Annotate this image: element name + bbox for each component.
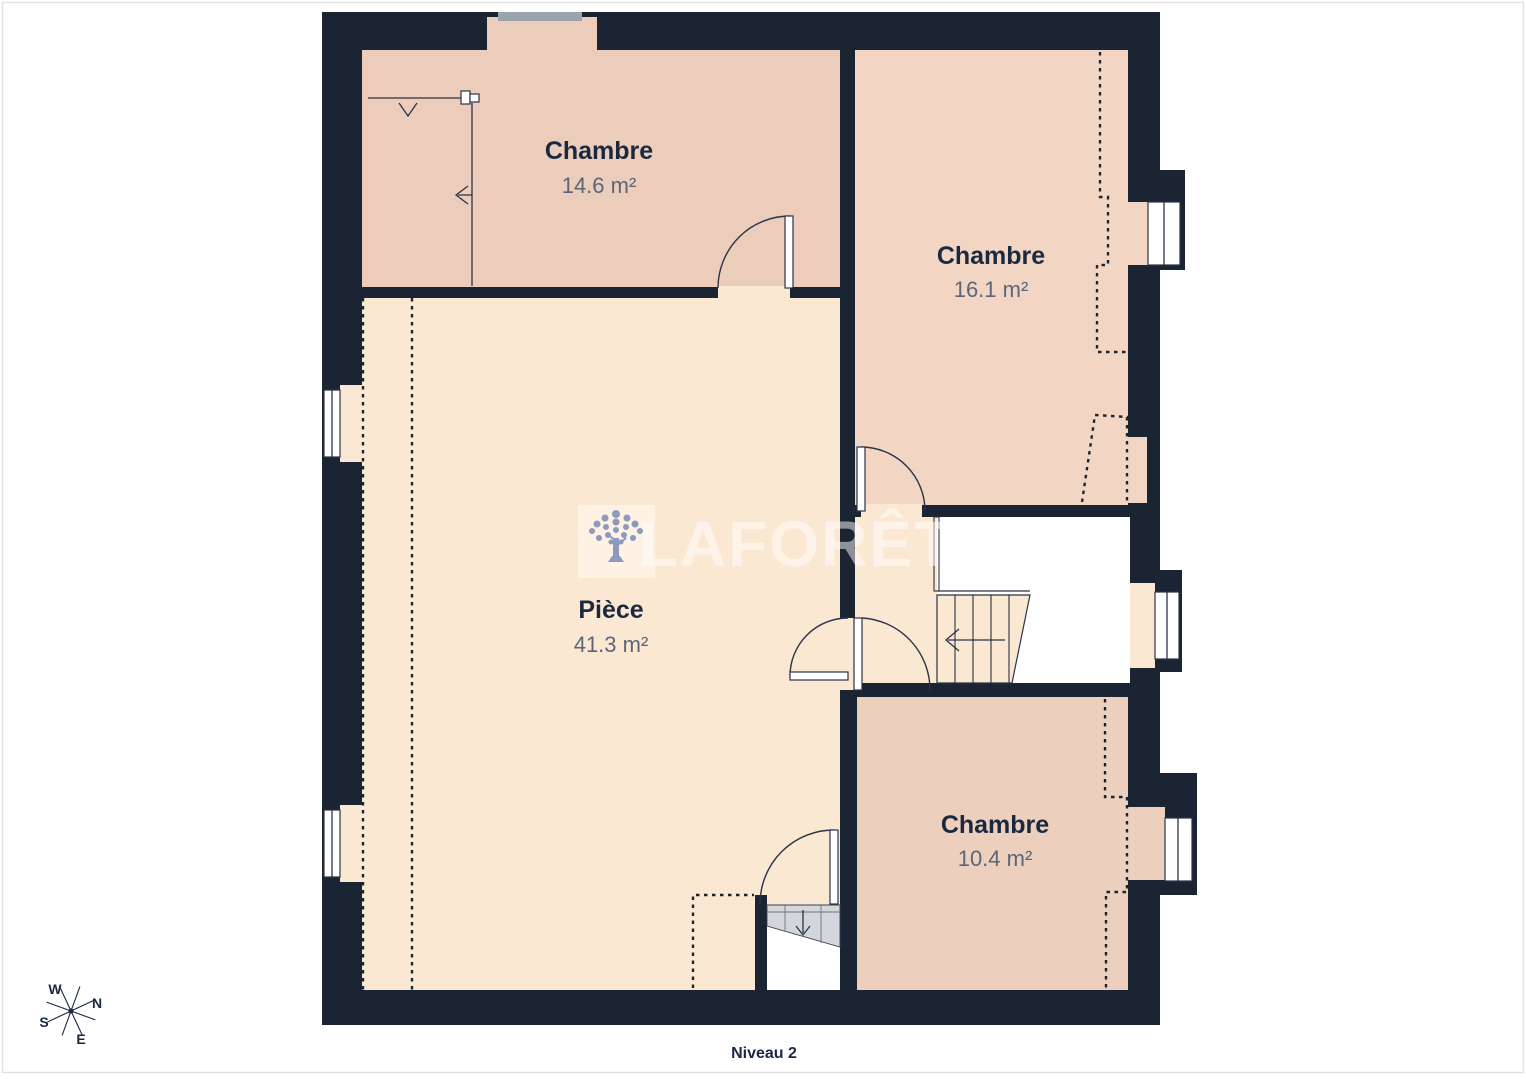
window-left-1 xyxy=(324,385,362,462)
compass-east: E xyxy=(76,1031,85,1047)
compass-north: N xyxy=(92,995,102,1011)
compass-rose: W N S E xyxy=(39,981,102,1047)
brand-watermark-text: LAFORÊT xyxy=(639,507,955,580)
wall-stub-lower-stair xyxy=(755,895,767,990)
window-right-3 xyxy=(1128,807,1192,881)
compass-center-dot xyxy=(68,1008,73,1013)
room-area-piece: 41.3 m² xyxy=(574,632,649,657)
window-right-1 xyxy=(1128,202,1180,265)
door-leaf xyxy=(857,447,865,511)
window-right-2 xyxy=(1130,583,1179,668)
room-chambre-2-wall-notch xyxy=(1128,437,1147,503)
hatch-symbol-small xyxy=(470,94,479,102)
room-label-chambre-2: Chambre xyxy=(937,242,1045,270)
door-opening-chambre-1 xyxy=(718,286,790,299)
room-label-chambre-3: Chambre xyxy=(941,811,1049,839)
level-label: Niveau 2 xyxy=(731,1045,797,1062)
room-area-chambre-1: 14.6 m² xyxy=(562,173,637,198)
room-chambre-1-floor xyxy=(362,50,840,287)
room-chambre-3-floor xyxy=(857,697,1128,990)
compass-west: W xyxy=(48,981,62,997)
floor-plan-canvas: LAFORÊT Chambre 14.6 m² Chambre 16.1 m² … xyxy=(0,0,1526,1079)
room-label-piece: Pièce xyxy=(578,596,643,624)
door-leaf xyxy=(790,672,848,680)
door-leaf xyxy=(830,830,838,904)
compass-south: S xyxy=(39,1014,48,1030)
room-area-chambre-3: 10.4 m² xyxy=(958,846,1033,871)
brand-watermark: LAFORÊT xyxy=(578,505,955,580)
door-leaf xyxy=(854,618,862,690)
door-leaf xyxy=(785,216,793,288)
room-area-chambre-2: 16.1 m² xyxy=(954,277,1029,302)
room-label-chambre-1: Chambre xyxy=(545,137,653,165)
hatch-symbol xyxy=(461,91,470,104)
floor-plan-page: LAFORÊT Chambre 14.6 m² Chambre 16.1 m² … xyxy=(0,0,1526,1079)
window-left-2 xyxy=(324,805,362,882)
roof-window-top xyxy=(487,12,597,50)
